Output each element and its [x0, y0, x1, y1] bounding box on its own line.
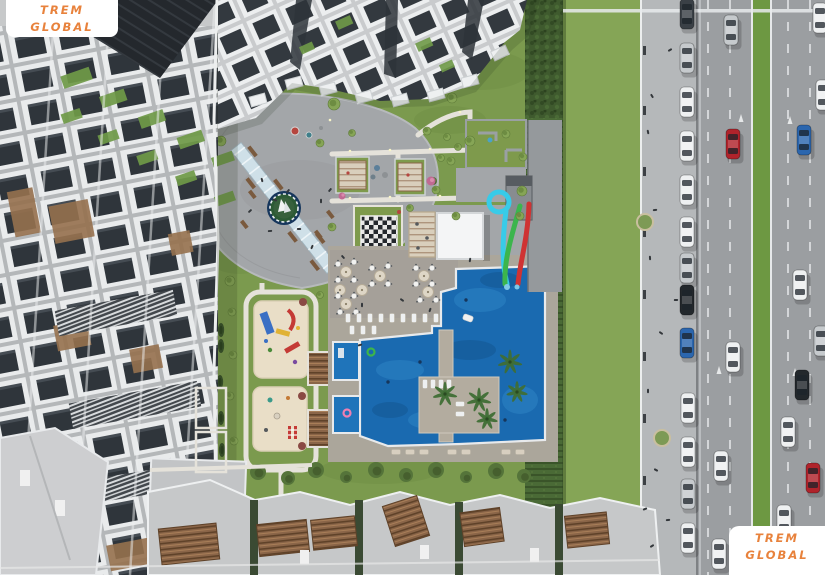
tree	[438, 155, 445, 162]
person	[647, 389, 649, 393]
car	[714, 451, 732, 486]
umbrella	[357, 285, 368, 296]
watermark-line1: TREM	[6, 2, 118, 19]
sun-lounger	[423, 314, 428, 323]
watermark-line1: TREM	[729, 530, 825, 547]
car	[681, 523, 699, 558]
umbrella	[341, 299, 352, 310]
sidewalktree	[637, 214, 653, 230]
car	[680, 131, 698, 166]
tree	[516, 212, 524, 220]
sun-lounger	[456, 402, 465, 407]
swimmer	[464, 298, 467, 301]
swimmer	[503, 418, 506, 421]
swimmer	[386, 380, 389, 383]
tree	[407, 205, 414, 212]
plaza-monument	[267, 191, 301, 225]
sun-lounger	[361, 326, 366, 335]
sun-lounger	[372, 326, 377, 335]
tree	[517, 186, 527, 196]
bush	[428, 462, 444, 478]
bush	[488, 463, 504, 479]
swimmer	[418, 360, 421, 363]
tree	[519, 153, 527, 161]
car	[681, 479, 699, 514]
tree	[465, 136, 475, 146]
car	[724, 15, 742, 50]
sun-lounger	[462, 450, 471, 455]
tree	[447, 157, 455, 165]
car	[712, 539, 730, 574]
bush	[517, 469, 531, 483]
person	[674, 299, 678, 301]
tree	[502, 130, 510, 138]
car	[680, 285, 698, 320]
white-canopy	[437, 213, 490, 261]
sun-lounger	[357, 314, 362, 323]
sun-lounger	[401, 314, 406, 323]
tree	[455, 144, 462, 151]
umbrella	[341, 267, 352, 278]
sun-lounger	[456, 412, 465, 417]
tree	[432, 186, 440, 194]
sun-lounger	[448, 450, 457, 455]
person	[320, 199, 322, 203]
bush	[281, 471, 295, 485]
umbrella	[375, 271, 386, 282]
car	[781, 417, 799, 452]
car	[793, 270, 811, 305]
pink	[339, 193, 346, 200]
tree	[328, 98, 340, 110]
cabana-pergola	[409, 212, 435, 257]
car	[816, 80, 825, 115]
bush	[460, 471, 472, 483]
sun-lounger	[516, 450, 525, 455]
bush	[340, 471, 352, 483]
person	[297, 228, 301, 230]
bush	[399, 468, 413, 482]
car	[726, 342, 744, 377]
car	[680, 87, 698, 122]
car	[680, 328, 698, 363]
car	[797, 125, 815, 160]
sun-lounger	[392, 450, 401, 455]
car	[726, 129, 744, 164]
sun-lounger	[502, 450, 511, 455]
sun-lounger	[368, 314, 373, 323]
grass-strip	[566, 0, 641, 575]
aerial-render: TREM GLOBAL TREM GLOBAL	[0, 0, 825, 575]
car	[795, 370, 813, 405]
sun-lounger	[350, 326, 355, 335]
tree	[444, 134, 451, 141]
tree	[423, 127, 431, 135]
tree	[317, 292, 324, 299]
person	[361, 303, 363, 307]
person	[649, 256, 651, 261]
scene-canvas	[0, 0, 825, 575]
sun-lounger	[346, 314, 351, 323]
watermark-top-left: TREM GLOBAL	[6, 0, 118, 37]
car	[681, 393, 699, 428]
sun-lounger	[406, 450, 415, 455]
car	[681, 437, 699, 472]
tree	[349, 130, 356, 137]
car	[680, 0, 698, 34]
sun-lounger	[390, 314, 395, 323]
tree	[328, 223, 336, 231]
sun-lounger	[379, 314, 384, 323]
car	[680, 43, 698, 78]
sun-lounger	[420, 450, 429, 455]
car	[680, 217, 698, 252]
sun-lounger	[439, 380, 444, 389]
road-median	[752, 0, 771, 575]
tree	[452, 212, 460, 220]
car	[813, 3, 825, 38]
person	[268, 230, 272, 232]
sun-lounger	[431, 380, 436, 389]
watermark-bottom-right: TREM GLOBAL	[729, 526, 825, 575]
sun-lounger	[447, 380, 452, 389]
car	[680, 175, 698, 210]
car	[680, 253, 698, 288]
car	[806, 463, 824, 498]
sun-lounger	[434, 314, 439, 323]
bush	[368, 462, 384, 478]
umbrella	[419, 271, 430, 282]
sun-lounger	[423, 380, 428, 389]
umbrella	[423, 287, 434, 298]
pink	[427, 177, 436, 186]
sidewalktree	[654, 430, 670, 446]
sun-lounger	[412, 314, 417, 323]
car	[814, 326, 825, 361]
watermark-line2: GLOBAL	[6, 19, 118, 36]
watermark-line2: GLOBAL	[729, 547, 825, 564]
tree	[316, 139, 324, 147]
